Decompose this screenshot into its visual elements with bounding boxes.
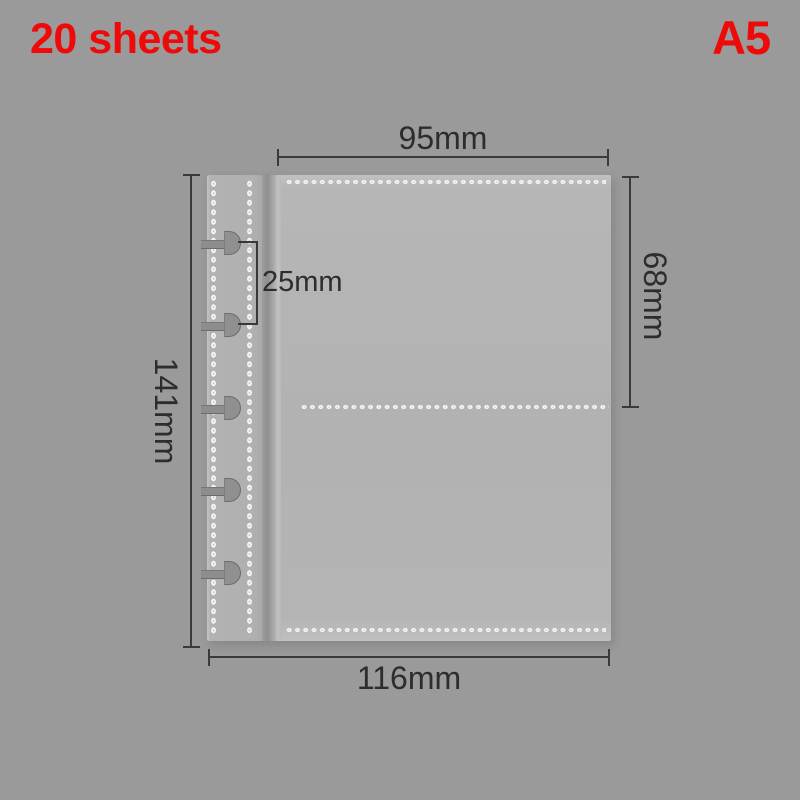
ring-cap <box>224 561 241 585</box>
stitch-line-top <box>285 178 606 186</box>
dimension-line-pocket-height <box>629 176 631 408</box>
dimension-line-pocket-width <box>277 156 609 158</box>
dimension-label-pocket-height: 68mm <box>639 252 671 341</box>
ring-stem <box>201 240 226 249</box>
sheet-count-label: 20 sheets <box>30 18 222 61</box>
dimension-line-page-height <box>190 174 192 648</box>
stitch-line-bottom <box>285 626 606 634</box>
binder-ring <box>201 396 247 420</box>
binder-sleeve <box>207 175 611 641</box>
dimension-label-pocket-width: 95mm <box>277 122 609 154</box>
dimension-label-page-width: 116mm <box>208 662 610 694</box>
pocket-divider-stitch <box>300 403 609 411</box>
ring-cap <box>224 478 241 502</box>
dimension-label-hole-spacing: 25mm <box>262 268 343 297</box>
binder-ring <box>201 561 247 585</box>
ring-stem <box>201 487 226 496</box>
dimension-line-page-width <box>208 656 610 658</box>
binder-ring <box>201 478 247 502</box>
hole-spacing-bracket <box>238 241 258 325</box>
ring-stem <box>201 405 226 414</box>
fold-crease <box>262 175 281 641</box>
ring-stem <box>201 322 226 331</box>
size-label: A5 <box>712 14 770 61</box>
ring-stem <box>201 570 226 579</box>
product-dimension-diagram: 20 sheets A5 95mm <box>0 0 800 800</box>
dimension-label-page-height: 141mm <box>150 358 182 465</box>
ring-cap <box>224 396 241 420</box>
